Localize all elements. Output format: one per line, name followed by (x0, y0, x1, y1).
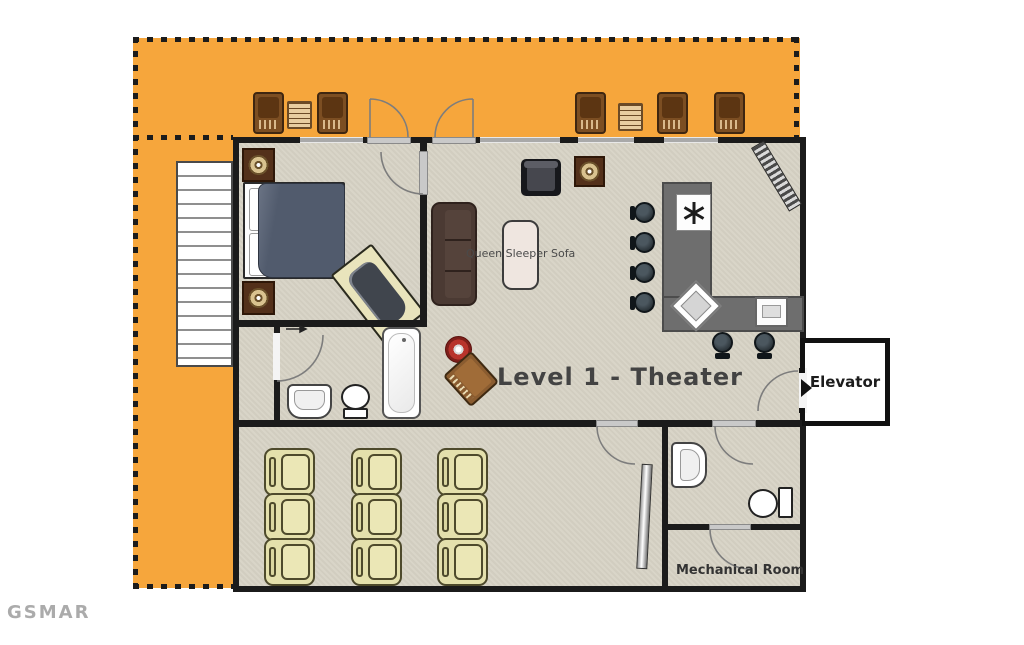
bathroom-door-leaf (273, 333, 280, 380)
recliner-icon (437, 538, 488, 586)
wall-mechanical-top-b (750, 524, 802, 530)
door-hinge-icon (799, 408, 805, 413)
wall-bedroom-right-lower (420, 194, 427, 327)
queen-sleeper-sofa-label: Queen Sleeper Sofa (466, 247, 591, 260)
recliner-icon (351, 448, 402, 496)
floor-plan: Elevator Level 1 - Theater Queen Sleeper… (0, 0, 1024, 645)
bar-stool-icon (710, 332, 735, 359)
recliner-icon (264, 538, 315, 586)
bathtub-icon (382, 327, 421, 419)
halfbath-door-leaf (713, 421, 755, 426)
bar-stool-icon (752, 332, 777, 359)
wall-theater-top-c (755, 420, 802, 427)
bar-stool-icon (630, 261, 656, 286)
recliner-icon (437, 448, 488, 496)
nightstand-lamp-icon (242, 148, 275, 182)
side-table-icon (287, 101, 312, 129)
wall-bedroom-right-upper (420, 140, 427, 152)
wall-theater-top-a (237, 420, 597, 427)
halfbath-toilet-icon (748, 489, 778, 518)
window-living-3 (664, 138, 718, 142)
deck-railing-bottom (133, 584, 233, 589)
lounge-chair-icon (317, 92, 348, 134)
appliance-icon (755, 297, 788, 327)
deck-door-threshold-living (433, 138, 475, 143)
recliner-icon (351, 493, 402, 541)
theater-door-leaf (597, 421, 637, 426)
lounge-chair-icon (714, 92, 745, 134)
lounge-chair-icon (657, 92, 688, 134)
deck-railing-divider (133, 135, 233, 140)
window-living-2 (578, 138, 634, 142)
exterior-stairs (176, 161, 233, 367)
wall-theater-top-b (637, 420, 713, 427)
cooktop-icon (676, 194, 711, 231)
bar-stool-icon (630, 201, 656, 226)
wall-mechanical-top-a (668, 524, 710, 530)
level-title: Level 1 - Theater (497, 363, 743, 391)
nightstand-lamp-icon (242, 281, 275, 315)
recliner-icon (351, 538, 402, 586)
halfbath-toilet-tank (778, 487, 793, 518)
bar-stool-icon (630, 231, 656, 256)
window-living-1 (480, 138, 560, 142)
window-bedroom (300, 138, 363, 142)
halfbath-sink-icon (671, 442, 707, 488)
deck-railing-right (794, 37, 799, 140)
mechanical-room-label: Mechanical Room (676, 563, 804, 578)
table-lamp-icon (574, 156, 605, 187)
sink-basin (680, 449, 700, 481)
recliner-icon (264, 448, 315, 496)
lounge-chair-icon (575, 92, 606, 134)
deck-door-threshold-bedroom (368, 138, 410, 143)
recliner-icon (264, 493, 315, 541)
armchair-icon (521, 159, 561, 196)
deck-railing-left (133, 37, 138, 590)
bar-stool-icon (630, 291, 656, 316)
toilet-tank (343, 408, 368, 419)
deck-railing-top (133, 37, 800, 42)
door-hinge-icon (799, 368, 805, 373)
elevator-room: Elevator (800, 338, 890, 426)
bathroom-sink-icon (287, 384, 332, 419)
bedroom-door-leaf (420, 152, 427, 194)
elevator-label: Elevator (810, 373, 880, 391)
side-table-icon (618, 103, 643, 131)
watermark: GSMAR (7, 602, 90, 623)
recliner-icon (437, 493, 488, 541)
bed-duvet (258, 183, 345, 278)
deck-top (133, 38, 800, 140)
wall-bedroom-bottom (237, 320, 427, 327)
mechanical-door-leaf (710, 525, 750, 529)
toilet-icon (341, 384, 370, 410)
wall-theater-right (662, 427, 668, 587)
lounge-chair-icon (253, 92, 284, 134)
sink-basin (294, 390, 325, 410)
elevator-door-marker-icon (801, 379, 812, 397)
